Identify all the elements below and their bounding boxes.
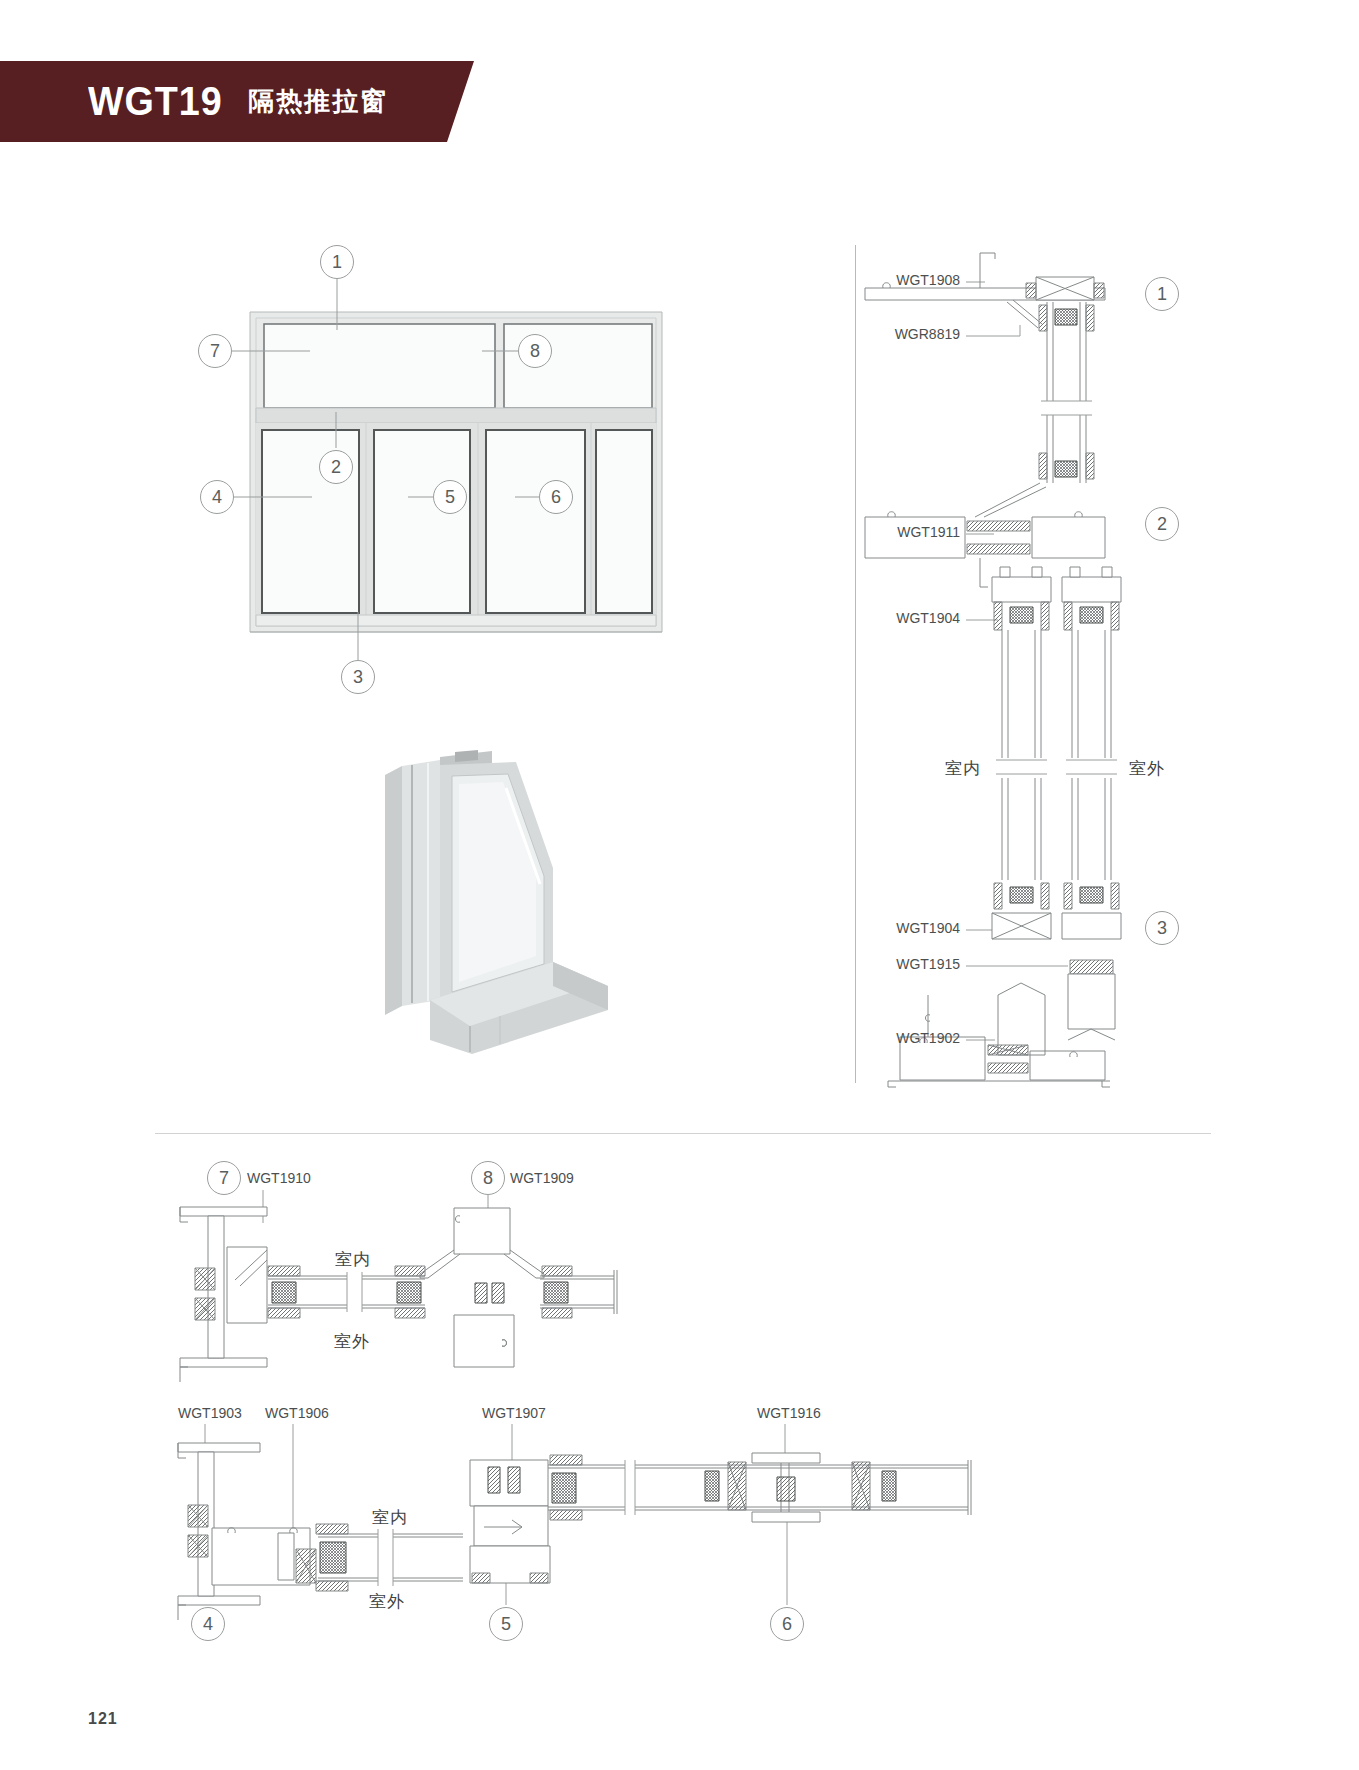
outdoor-label-vertical: 室外 xyxy=(1107,757,1187,780)
callout-section-1-number: 1 xyxy=(1157,284,1167,305)
callout-section-1: 1 xyxy=(1145,277,1179,311)
callout-section-3-number: 3 xyxy=(1157,918,1167,939)
callout-4: 4 xyxy=(200,480,234,514)
callout-7-number: 7 xyxy=(210,341,220,362)
profile-3d-render xyxy=(330,740,730,1070)
callout-5-number: 5 xyxy=(445,487,455,508)
callout-6: 6 xyxy=(539,480,573,514)
callout-detail-7-number: 7 xyxy=(219,1168,229,1189)
indoor-label-bottom-section: 室内 xyxy=(350,1506,430,1529)
callout-8-number: 8 xyxy=(530,341,540,362)
horizontal-divider xyxy=(155,1133,1211,1134)
callout-1-number: 1 xyxy=(332,252,342,273)
catalog-page: { "header": { "model": "WGT19", "series_… xyxy=(0,0,1359,1770)
callout-detail-4-number: 4 xyxy=(203,1614,213,1635)
callout-2-number: 2 xyxy=(331,457,341,478)
label-wgt1911: WGT1911 xyxy=(840,524,960,540)
callout-detail-5-number: 5 xyxy=(501,1614,511,1635)
callout-detail-5: 5 xyxy=(489,1607,523,1641)
page-title-model: WGT19 xyxy=(88,78,223,125)
label-wgt1904-bottom: WGT1904 xyxy=(840,920,960,936)
label-wgt1909: WGT1909 xyxy=(510,1170,574,1186)
label-wgt1910: WGT1910 xyxy=(247,1170,311,1186)
callout-8: 8 xyxy=(518,334,552,368)
label-wgr8819: WGR8819 xyxy=(840,326,960,342)
callout-7: 7 xyxy=(198,334,232,368)
label-wgt1902: WGT1902 xyxy=(840,1030,960,1046)
callout-detail-8: 8 xyxy=(471,1161,505,1195)
horizontal-section-bottom-drawing xyxy=(140,1405,1030,1660)
label-wgt1904-mid: WGT1904 xyxy=(840,610,960,626)
indoor-label-top-section: 室内 xyxy=(313,1248,393,1271)
outdoor-label-top-section: 室外 xyxy=(312,1330,392,1353)
callout-detail-6: 6 xyxy=(770,1607,804,1641)
callout-detail-8-number: 8 xyxy=(483,1168,493,1189)
header-band: WGT19 隔热推拉窗 xyxy=(0,61,474,142)
callout-section-2-number: 2 xyxy=(1157,514,1167,535)
outdoor-label-bottom-section: 室外 xyxy=(347,1590,427,1613)
label-wgt1907: WGT1907 xyxy=(482,1405,546,1421)
label-wgt1906: WGT1906 xyxy=(265,1405,329,1421)
label-wgt1903: WGT1903 xyxy=(178,1405,242,1421)
label-wgt1916: WGT1916 xyxy=(757,1405,821,1421)
callout-detail-6-number: 6 xyxy=(782,1614,792,1635)
callout-1: 1 xyxy=(320,245,354,279)
window-elevation-drawing xyxy=(150,215,690,700)
label-wgt1908: WGT1908 xyxy=(840,272,960,288)
callout-section-2: 2 xyxy=(1145,507,1179,541)
callout-6-number: 6 xyxy=(551,487,561,508)
callout-4-number: 4 xyxy=(212,487,222,508)
callout-2: 2 xyxy=(319,450,353,484)
vertical-section-drawing xyxy=(770,225,1220,1100)
callout-3: 3 xyxy=(341,660,375,694)
page-number: 121 xyxy=(88,1710,118,1728)
callout-detail-7: 7 xyxy=(207,1161,241,1195)
page-title-series: 隔热推拉窗 xyxy=(248,84,388,119)
callout-section-3: 3 xyxy=(1145,911,1179,945)
callout-detail-4: 4 xyxy=(191,1607,225,1641)
callout-5: 5 xyxy=(433,480,467,514)
callout-3-number: 3 xyxy=(353,667,363,688)
indoor-label-vertical: 室内 xyxy=(923,757,1003,780)
label-wgt1915: WGT1915 xyxy=(840,956,960,972)
